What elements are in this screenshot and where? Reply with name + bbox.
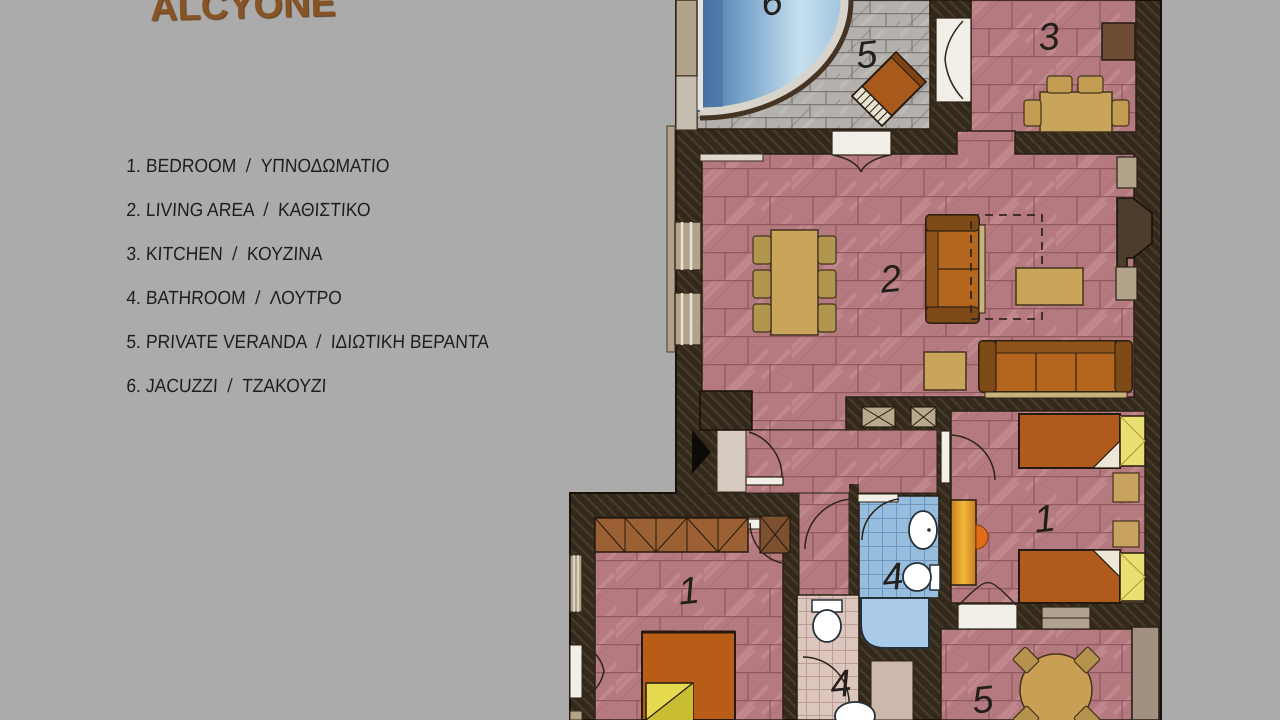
svg-text:4: 4 <box>828 663 853 707</box>
svg-text:1: 1 <box>676 570 701 614</box>
svg-text:2: 2 <box>877 258 903 302</box>
svg-text:3: 3 <box>1036 16 1061 60</box>
svg-text:6: 6 <box>759 0 785 25</box>
svg-text:4: 4 <box>880 556 905 600</box>
svg-text:1: 1 <box>1032 498 1057 542</box>
